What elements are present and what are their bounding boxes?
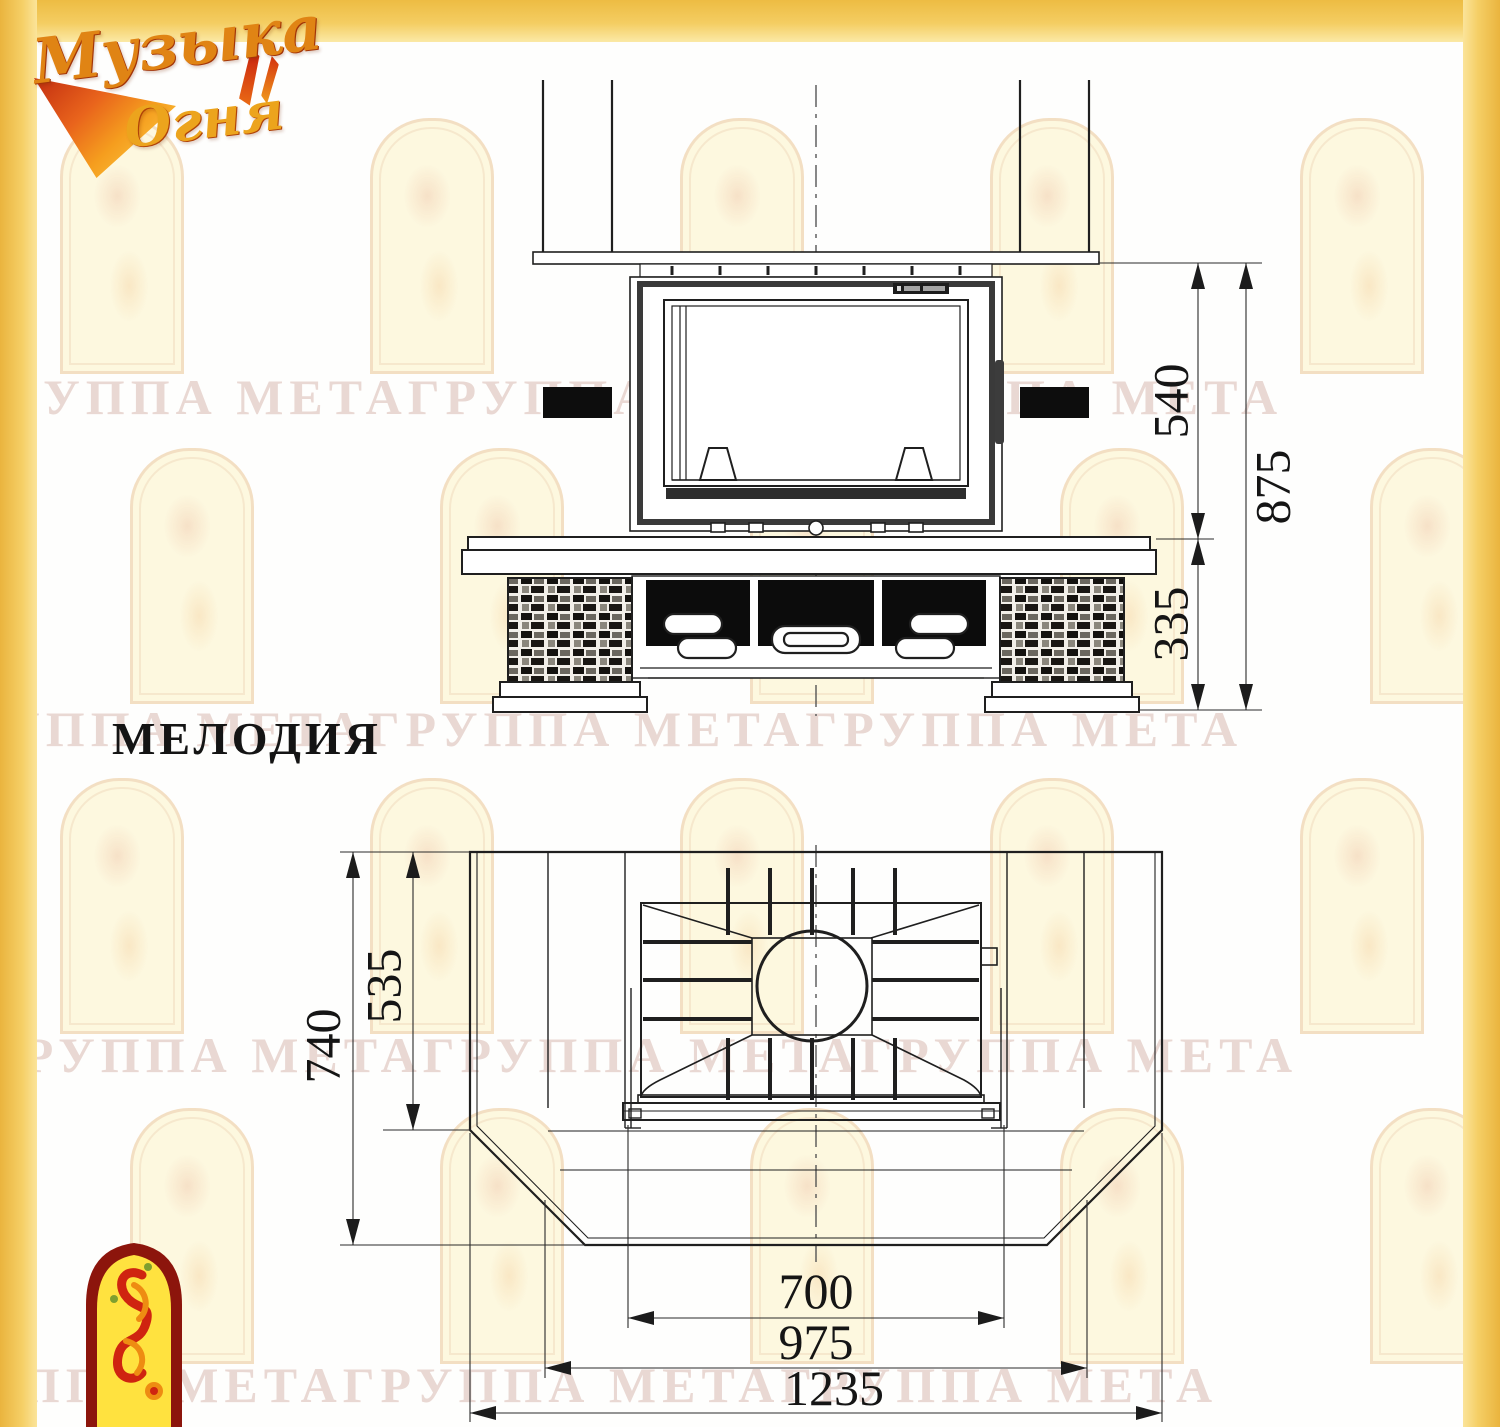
dim-plan-700: 700 xyxy=(779,1263,854,1319)
logo-word-2: Огня xyxy=(121,82,286,155)
dim-front-540: 540 xyxy=(1142,364,1198,439)
insert-top-plate xyxy=(640,264,992,277)
firebird-arch-emblem-icon xyxy=(84,1241,184,1427)
plan-view xyxy=(340,845,1162,1422)
side-slot-left xyxy=(543,387,612,418)
mantel-shelf xyxy=(462,537,1156,574)
model-title: МЕЛОДИЯ xyxy=(112,712,382,765)
firebox-door xyxy=(630,277,1004,535)
meta-brand-mark-icon xyxy=(893,283,949,294)
side-nub xyxy=(981,948,997,965)
dim-plan-740: 740 xyxy=(294,1009,350,1084)
catalog-page: ГРУППА МЕТАГРУППА МЕТАГРУППА МЕТА ГРУППА… xyxy=(0,0,1500,1427)
dim-plan-535: 535 xyxy=(355,949,411,1024)
muzyka-ognya-logo: Музыка Огня xyxy=(26,6,276,181)
page-border-right xyxy=(1463,0,1500,1427)
dim-plan-1235: 1235 xyxy=(784,1360,884,1416)
pillar-left xyxy=(508,578,632,682)
page-border-left xyxy=(0,0,37,1427)
pillar-right xyxy=(1000,578,1124,682)
dim-front-875: 875 xyxy=(1244,450,1300,525)
side-slot-right xyxy=(1020,387,1089,418)
fins xyxy=(643,942,979,1019)
door-handle-icon xyxy=(995,360,1004,444)
top-band xyxy=(533,252,1099,264)
dim-front-335: 335 xyxy=(1142,587,1198,662)
flue-collar-circle xyxy=(757,931,867,1041)
